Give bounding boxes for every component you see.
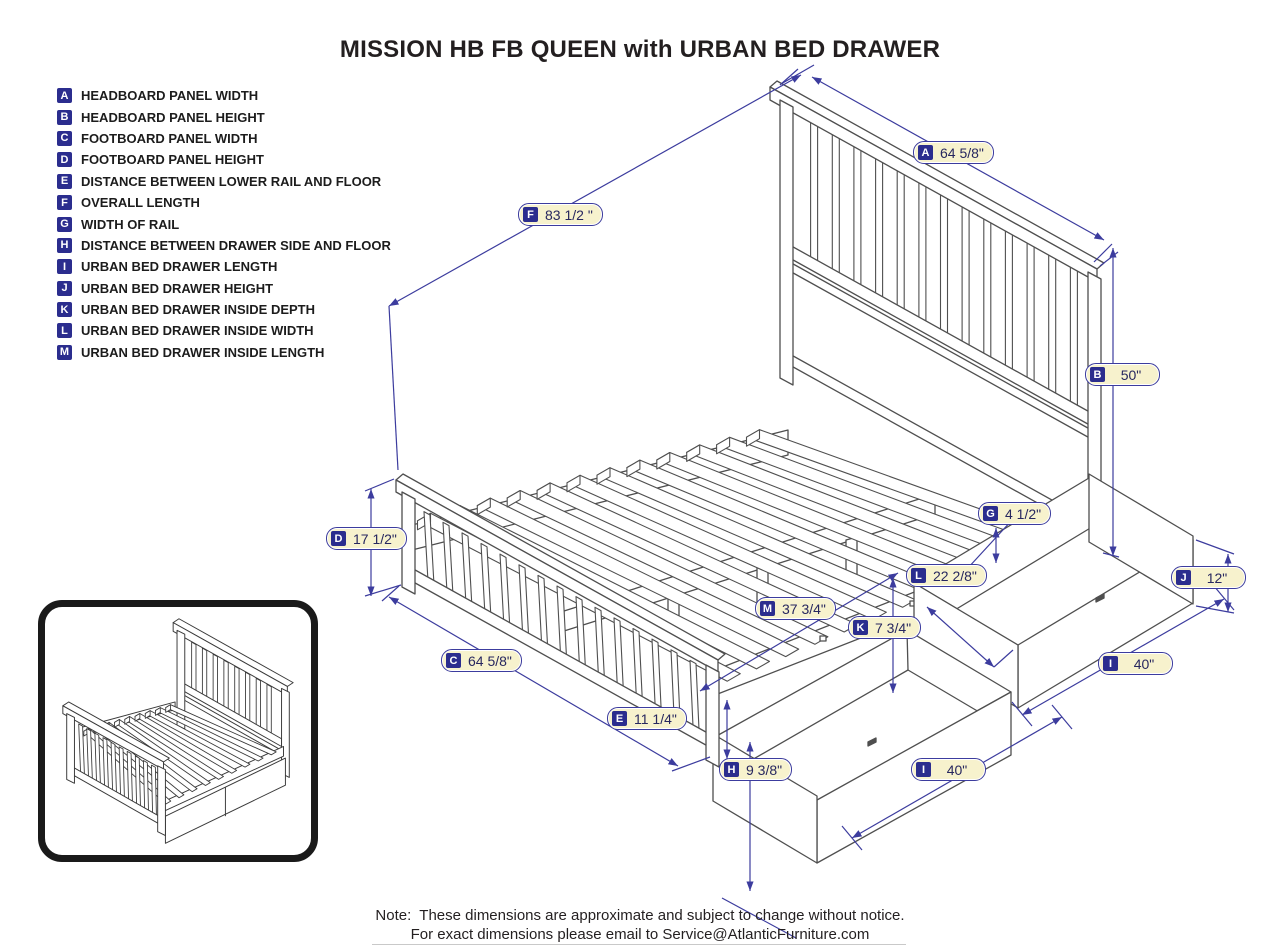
dim-label-i-bottom: I40" <box>911 758 986 781</box>
dim-label-f: F83 1/2 " <box>518 203 603 226</box>
dim-label-c: C64 5/8" <box>441 649 522 672</box>
dim-badge-m: M <box>760 601 775 616</box>
dim-value-g: 4 1/2" <box>1005 506 1041 522</box>
dim-value-i-bottom: 40" <box>938 762 976 778</box>
bottom-divider <box>372 944 906 945</box>
note-prefix: Note: <box>375 907 411 924</box>
dim-label-h: H9 3/8" <box>719 758 792 781</box>
dim-value-i-right: 40" <box>1125 656 1163 672</box>
dim-badge-a: A <box>918 145 933 160</box>
dim-label-m: M37 3/4" <box>755 597 836 620</box>
dim-label-d: D17 1/2" <box>326 527 407 550</box>
dim-badge-i-bottom: I <box>916 762 931 777</box>
dim-label-l: L22 2/8" <box>906 564 987 587</box>
dim-label-k: K7 3/4" <box>848 616 921 639</box>
dim-value-f: 83 1/2 " <box>545 207 593 223</box>
dim-value-h: 9 3/8" <box>746 762 782 778</box>
dim-badge-f: F <box>523 207 538 222</box>
dim-badge-c: C <box>446 653 461 668</box>
note-line-1: Note:These dimensions are approximate an… <box>0 906 1280 925</box>
note-line-2: For exact dimensions please email to Ser… <box>0 925 1280 944</box>
dim-label-a: A64 5/8" <box>913 141 994 164</box>
note-text-1: These dimensions are approximate and sub… <box>419 907 904 924</box>
dim-badge-l: L <box>911 568 926 583</box>
assembled-bed-thumbnail <box>38 600 318 862</box>
dim-value-j: 12" <box>1198 570 1236 586</box>
dim-label-i-right: I40" <box>1098 652 1173 675</box>
dim-value-m: 37 3/4" <box>782 601 826 617</box>
note: Note:These dimensions are approximate an… <box>0 906 1280 944</box>
dim-label-j: J12" <box>1171 566 1246 589</box>
dim-badge-i-right: I <box>1103 656 1118 671</box>
dim-value-l: 22 2/8" <box>933 568 977 584</box>
dim-badge-g: G <box>983 506 998 521</box>
dim-value-k: 7 3/4" <box>875 620 911 636</box>
dim-value-c: 64 5/8" <box>468 653 512 669</box>
dim-badge-h: H <box>724 762 739 777</box>
assembled-bed-drawing <box>49 611 307 851</box>
dim-label-g: G4 1/2" <box>978 502 1051 525</box>
dim-value-e: 11 1/4" <box>634 711 677 727</box>
dim-value-a: 64 5/8" <box>940 145 984 161</box>
dim-badge-k: K <box>853 620 868 635</box>
dim-label-e: E11 1/4" <box>607 707 687 730</box>
diagram-page: MISSION HB FB QUEEN with URBAN BED DRAWE… <box>0 0 1280 950</box>
dim-badge-j: J <box>1176 570 1191 585</box>
dim-badge-b: B <box>1090 367 1105 382</box>
dim-badge-e: E <box>612 711 627 726</box>
dim-badge-d: D <box>331 531 346 546</box>
dim-value-d: 17 1/2" <box>353 531 397 547</box>
dim-label-b: B50" <box>1085 363 1160 386</box>
dim-value-b: 50" <box>1112 367 1150 383</box>
